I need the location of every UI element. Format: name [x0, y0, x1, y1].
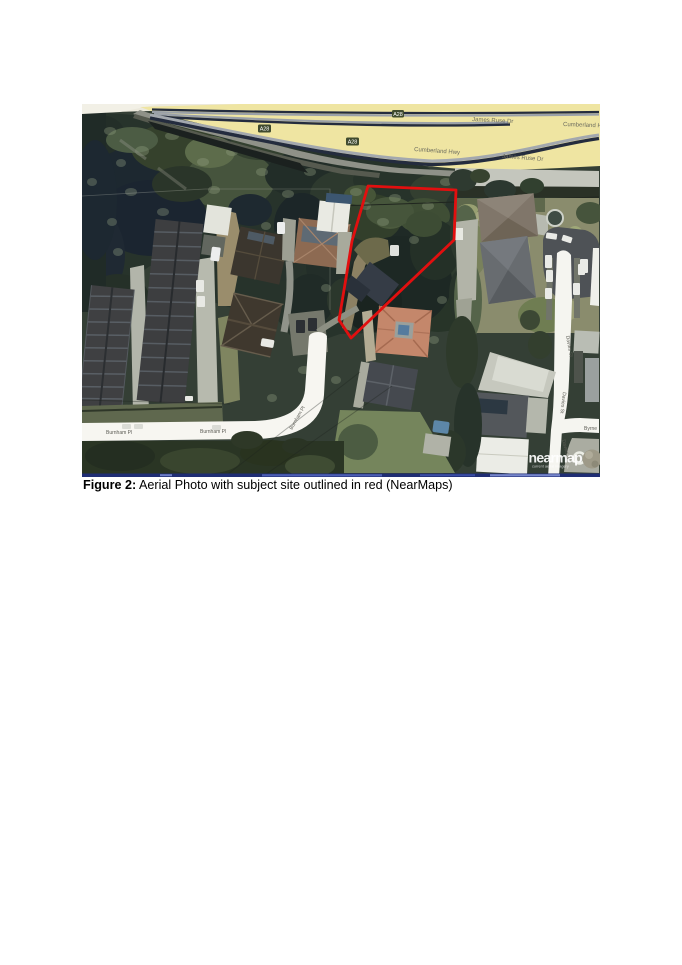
svg-text:A28: A28 — [348, 140, 358, 146]
svg-text:A28: A28 — [393, 112, 403, 118]
svg-text:Byrne: Byrne — [584, 426, 597, 432]
svg-text:current aerial imagery: current aerial imagery — [532, 465, 569, 469]
svg-text:nearmap: nearmap — [529, 450, 583, 466]
svg-text:Burnham Pl: Burnham Pl — [200, 429, 226, 435]
svg-text:A28: A28 — [260, 127, 270, 133]
svg-text:Burnham Pl: Burnham Pl — [106, 430, 132, 436]
